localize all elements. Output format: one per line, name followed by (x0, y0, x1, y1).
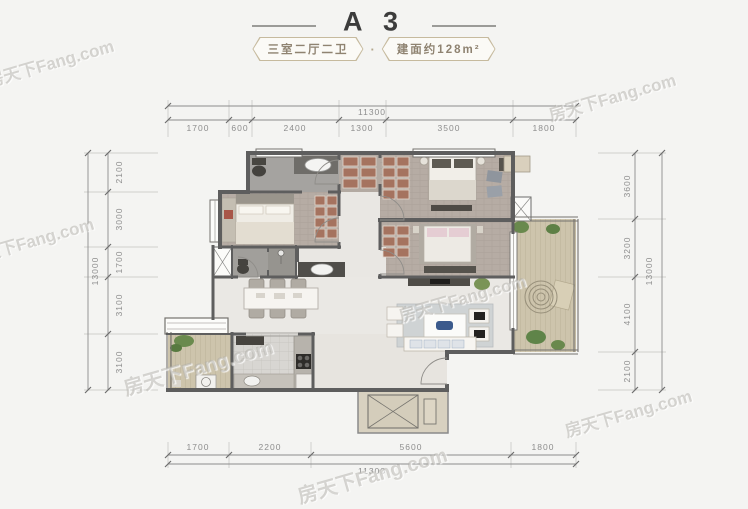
badge-separator: · (370, 42, 374, 57)
title-line-left (252, 25, 316, 27)
dim-top-seg-4: 3500 (438, 123, 461, 133)
title-line-right (432, 25, 496, 27)
layout-badge: 三室二厅二卫 (252, 37, 363, 61)
dim-top-seg-5: 1800 (533, 123, 556, 133)
area-badge-text: 建面约128m² (383, 38, 495, 60)
dim-top-seg-3: 1300 (351, 123, 374, 133)
bathroom-2-floor (232, 247, 268, 277)
dim-left-total: 13000 (90, 257, 100, 286)
dim-left-seg-1: 3000 (114, 208, 124, 231)
dim-bottom-total: 11300 (358, 466, 386, 476)
dim-left-seg-4: 3100 (114, 351, 124, 374)
dim-right-seg-1: 3200 (622, 237, 632, 260)
bedroom-2-furniture (222, 194, 337, 244)
dim-right-total: 13000 (644, 257, 654, 286)
dim-right-seg-2: 4100 (622, 303, 632, 326)
dim-right-seg-3: 2100 (622, 360, 632, 383)
dim-bottom-seg-3: 1800 (532, 442, 555, 452)
dim-top-seg-1: 600 (231, 123, 248, 133)
page-title: A 3 (343, 7, 405, 38)
dim-left-seg-0: 2100 (114, 161, 124, 184)
dim-bottom-seg-2: 5600 (400, 442, 423, 452)
dim-top-seg-0: 1700 (187, 123, 210, 133)
layout-badge-text: 三室二厅二卫 (253, 38, 362, 60)
dim-left-seg-2: 1700 (114, 251, 124, 274)
corridor-floor (339, 192, 380, 247)
dim-top-total: 11300 (358, 107, 386, 117)
area-badge: 建面约128m² (382, 37, 496, 61)
elevator-core (358, 390, 448, 433)
floorplan-drawing (0, 0, 748, 499)
dim-top-seg-2: 2400 (284, 123, 307, 133)
dim-bottom-seg-0: 1700 (187, 442, 210, 452)
dim-bottom-seg-1: 2200 (259, 442, 282, 452)
subtitle-badges: 三室二厅二卫 · 建面约128m² (252, 37, 495, 61)
dim-right-seg-0: 3600 (622, 175, 632, 198)
floorplan-page: A 3 三室二厅二卫 · 建面约128m² 11300 1700 600 240… (0, 0, 748, 499)
dim-left-seg-3: 3100 (114, 294, 124, 317)
